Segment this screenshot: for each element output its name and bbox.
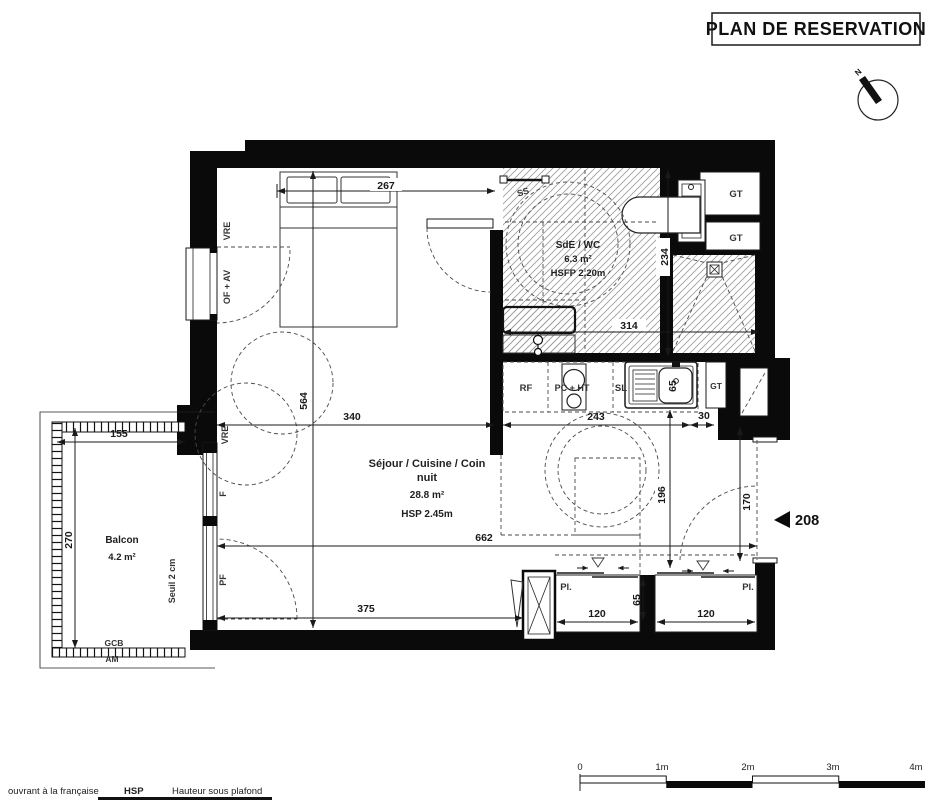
label-gt-2: GT: [729, 233, 742, 244]
wall-top-left: [190, 151, 512, 168]
duct-flag: [511, 580, 523, 627]
floor-plan-svg: 267 564 340 662 375 155 270 234 314 243 …: [0, 0, 941, 800]
sejour-name-line1: Séjour / Cuisine / Coin: [369, 458, 486, 470]
scale-0: 0: [577, 762, 582, 773]
dim-entry-height: 170: [741, 493, 753, 511]
wall-top-step: [245, 140, 512, 152]
label-vre-top: VRE: [222, 222, 232, 241]
entrance-threshold-bottom: [753, 558, 777, 563]
label-rf: RF: [520, 383, 533, 394]
dim-entry-depth: 196: [656, 486, 668, 504]
turning-circle-entry-inner: [558, 426, 646, 514]
balcon-area: 4.2 m²: [108, 552, 135, 563]
dim-bath-width: 314: [620, 320, 638, 332]
label-sl: SL: [615, 383, 627, 394]
label-vre-mid: VRE: [220, 426, 230, 445]
scale-1m: 1m: [655, 762, 668, 773]
sejour-name-line2: nuit: [417, 472, 437, 484]
turning-circle-entry-outer: [545, 413, 659, 527]
wall-bottom: [190, 630, 775, 650]
page-title: PLAN DE RESERVATION: [706, 19, 927, 39]
dim-closet1-width: 120: [588, 608, 606, 620]
label-pl-right: Pl.: [742, 582, 754, 593]
dim-kitchen-gap: 30: [698, 410, 710, 422]
legend-term-1: ouvrant à la française: [8, 786, 99, 797]
dim-balcony-width: 155: [110, 428, 128, 440]
balcony-door-swing: [217, 539, 297, 619]
dim-bed-width: 267: [377, 180, 395, 192]
dim-room-width-bottom: 375: [357, 603, 375, 615]
label-pl-left: Pl.: [560, 582, 572, 593]
scale-seg-2: [666, 781, 752, 788]
dim-room-width-top: 340: [343, 411, 361, 423]
label-pc-ht: PC + HT: [555, 383, 590, 393]
bathroom-door-swing: [427, 228, 491, 292]
label-am: AM: [105, 654, 118, 664]
title-block: PLAN DE RESERVATION: [706, 13, 927, 45]
unit-number: 208: [795, 513, 819, 529]
scale-4m: 4m: [909, 762, 922, 773]
dim-room-height: 564: [298, 392, 310, 410]
wall-bathroom-west: [490, 230, 503, 455]
glazed-facade: [203, 443, 217, 630]
scale-2m: 2m: [741, 762, 754, 773]
scale-seg-3: [753, 776, 839, 783]
dim-sink-width: 65: [667, 380, 679, 392]
pillow-left: [287, 177, 337, 203]
floor-plan-page: 267 564 340 662 375 155 270 234 314 243 …: [0, 0, 941, 800]
bathtub: [622, 197, 700, 233]
label-gt-kitchen: GT: [710, 381, 723, 391]
scale-3m: 3m: [826, 762, 839, 773]
sde-ceiling: HSFP 2.20m: [551, 268, 606, 279]
unit-marker: 208: [774, 511, 819, 529]
wall-left-upper: [190, 151, 217, 250]
dim-balcony-depth: 270: [63, 531, 75, 549]
label-gt-1: GT: [729, 189, 742, 200]
label-of-av: OF + AV: [222, 270, 232, 304]
legend-abbr-hsp: HSP: [124, 786, 144, 797]
wall-right-lower: [755, 563, 775, 650]
dim-room-width: 662: [475, 532, 493, 544]
dim-closet2-width: 120: [697, 608, 715, 620]
label-gcb: GCB: [105, 638, 124, 648]
bed: [280, 172, 397, 327]
dim-bath-depth: 234: [659, 248, 671, 266]
balcon-threshold: Seuil 2 cm: [167, 559, 177, 604]
wall-shower-south: [660, 353, 775, 362]
sde-name: SdE / WC: [556, 240, 600, 251]
balcony-railing-left: [52, 422, 62, 657]
sejour-ceiling: HSP 2.45m: [401, 509, 453, 520]
scale-bar: 0 1m 2m 3m 4m: [577, 762, 925, 791]
unit-arrow-icon: [774, 511, 790, 528]
dim-kitchen-width: 243: [587, 411, 605, 423]
sliding-door-marker-icon: [592, 558, 604, 567]
legend: ouvrant à la française HSP Hauteur sous …: [8, 786, 272, 800]
sejour-area: 28.8 m²: [410, 490, 445, 501]
vanity-counter: [503, 307, 575, 333]
sde-area: 6.3 m²: [564, 254, 591, 265]
balcon-name: Balcon: [105, 535, 138, 546]
window-of-av: [186, 248, 217, 320]
sliding-door-marker-icon: [697, 561, 709, 570]
compass-north: N: [853, 67, 863, 78]
dim-closet-depth: 65: [631, 594, 643, 606]
label-pf: PF: [218, 574, 228, 586]
scale-seg-1: [580, 776, 666, 783]
compass: N: [853, 67, 898, 120]
wc-flush-icon: [534, 336, 543, 345]
scale-seg-4: [839, 781, 925, 788]
legend-def-hsp: Hauteur sous plafond: [172, 786, 262, 797]
bathroom-door-leaf: [427, 219, 493, 228]
label-f: F: [218, 491, 228, 497]
